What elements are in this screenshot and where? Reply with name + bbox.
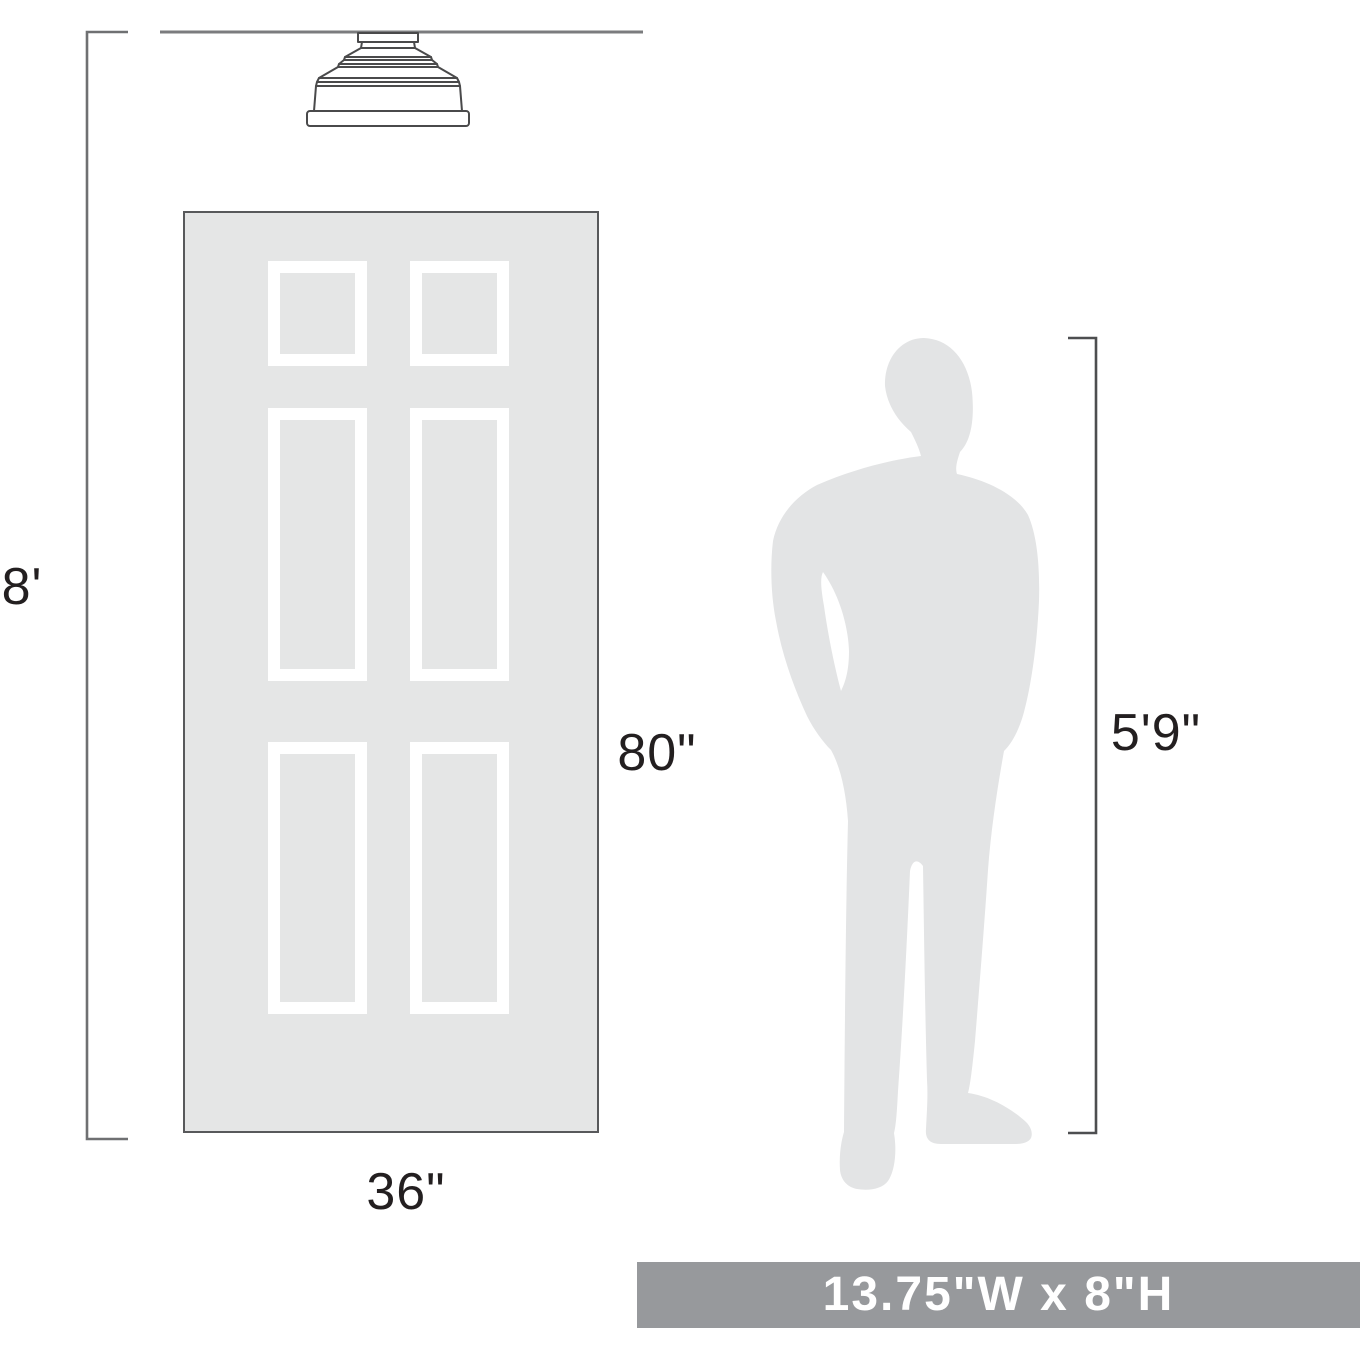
door-panel-inset — [280, 273, 355, 354]
door-panel-inset — [422, 273, 497, 354]
flush-mount-ceiling-light-icon — [307, 33, 469, 126]
product-size-banner: 13.75"W x 8"H — [637, 1262, 1360, 1328]
door-panel-inset — [422, 754, 497, 1002]
door-panel-inset — [422, 420, 497, 669]
door-panel-inset — [280, 420, 355, 669]
door-panel-bottom-right — [410, 742, 509, 1014]
ceiling-height-dimension-line — [87, 32, 128, 1139]
person-height-label: 5'9" — [1111, 707, 1201, 759]
man-silhouette-icon — [771, 338, 1039, 1190]
door-panel-top-left — [268, 261, 367, 366]
door-panel-bottom-left — [268, 742, 367, 1014]
door-panel-top-right — [410, 261, 509, 366]
door-width-label: 36" — [366, 1166, 445, 1218]
product-size-text: 13.75"W x 8"H — [823, 1271, 1175, 1319]
six-panel-door — [183, 211, 599, 1133]
scale-diagram: 8' 80" 36" 5'9" 13.75"W x 8"H — [0, 0, 1360, 1360]
door-height-label: 80" — [617, 727, 696, 779]
door-panel-middle-left — [268, 408, 367, 681]
door-panel-middle-right — [410, 408, 509, 681]
person-height-dimension-line — [1068, 338, 1096, 1133]
ceiling-height-label: 8' — [2, 561, 43, 613]
door-panel-inset — [280, 754, 355, 1002]
